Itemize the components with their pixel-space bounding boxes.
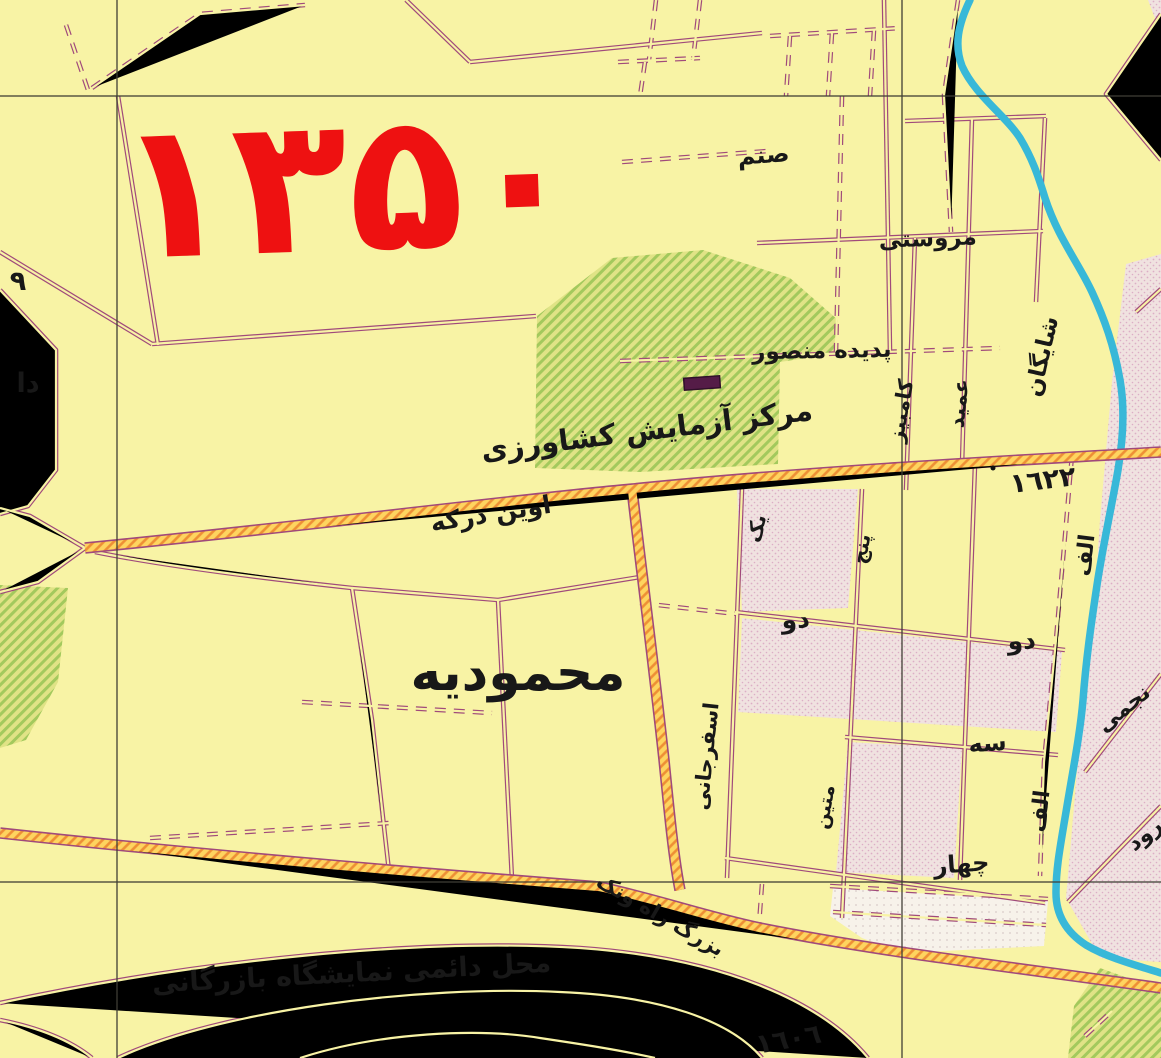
label-alef-2: الف <box>1026 789 1056 834</box>
label-nine: ٩ <box>10 266 26 297</box>
label-da: دا <box>16 368 39 399</box>
map-canvas: ۱۳۵۰محمودیهمرکز آزمایش کشاورزیاوین درکهص… <box>0 0 1161 1058</box>
building-marker <box>684 376 721 390</box>
map-sheet: ۱۳۵۰محمودیهمرکز آزمایش کشاورزیاوین درکهص… <box>0 0 1161 1058</box>
built-block-1 <box>737 489 858 612</box>
label-do-2: دو <box>1005 625 1037 657</box>
label-seh: سه <box>967 728 1007 759</box>
label-padideh-mansour: پدیده منصور <box>751 337 892 365</box>
label-do-1: دو <box>779 604 811 636</box>
label-amid: عمید <box>945 378 974 429</box>
label-alef-1: الف <box>1071 533 1101 578</box>
label-sanam: صنم <box>737 139 791 171</box>
label-chahar: چهار <box>932 848 991 880</box>
label-mahmoudieh: محمودیه <box>411 643 626 703</box>
label-marvasti: مروستی <box>878 224 977 253</box>
elevation-point <box>991 466 996 471</box>
label-year: ۱۳۵۰ <box>112 66 583 303</box>
